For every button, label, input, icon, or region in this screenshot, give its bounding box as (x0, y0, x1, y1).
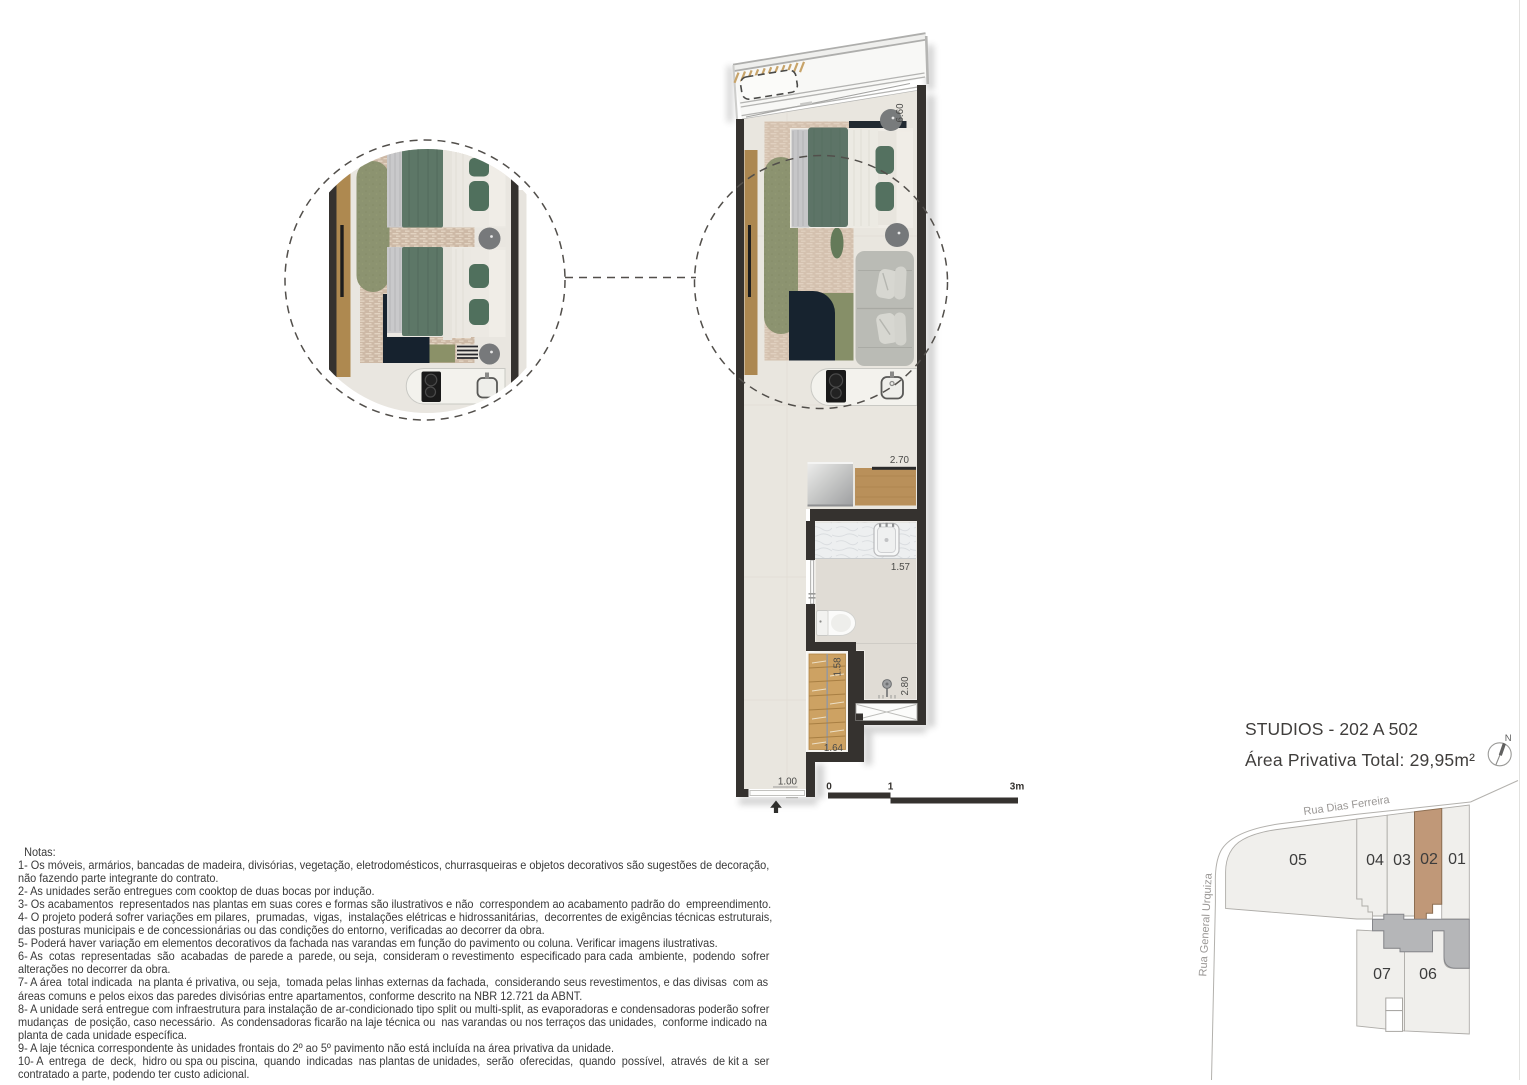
svg-text:0: 0 (826, 782, 832, 793)
svg-text:06: 06 (1419, 966, 1437, 983)
svg-text:N: N (1505, 733, 1512, 744)
svg-text:02: 02 (1420, 851, 1438, 868)
svg-text:01: 01 (1448, 851, 1466, 868)
svg-text:1.00: 1.00 (778, 777, 798, 788)
svg-text:1: 1 (888, 782, 894, 793)
svg-text:3m: 3m (1010, 782, 1025, 793)
svg-text:2.70: 2.70 (890, 455, 910, 466)
svg-text:6.60: 6.60 (895, 103, 906, 123)
svg-text:1.57: 1.57 (891, 562, 910, 573)
svg-text:1.58: 1.58 (833, 657, 844, 677)
svg-text:07: 07 (1373, 966, 1391, 983)
svg-text:Rua Dias Ferreira: Rua Dias Ferreira (1303, 794, 1392, 818)
svg-text:Rua General Urquiza: Rua General Urquiza (1197, 872, 1214, 977)
svg-text:03: 03 (1393, 852, 1411, 869)
svg-text:04: 04 (1366, 852, 1384, 869)
svg-text:05: 05 (1289, 852, 1307, 869)
svg-text:2.80: 2.80 (900, 676, 911, 696)
